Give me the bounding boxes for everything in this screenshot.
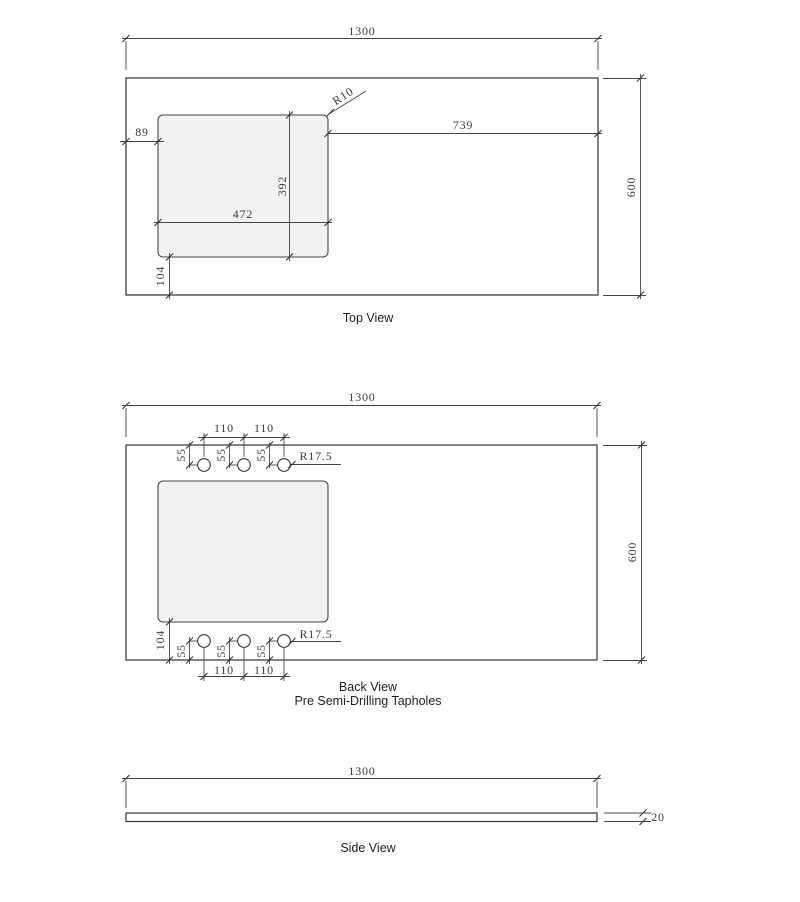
- top-cutout-width-dim: 472: [233, 208, 253, 220]
- top-cutout-offset-front-dim: 104: [154, 266, 166, 286]
- back-overall-width-dim: 1300: [348, 391, 375, 403]
- back-taphole-offset-top-2-dim: 55: [215, 448, 227, 462]
- back-taphole-offset-bottom-3-dim: 55: [255, 644, 267, 658]
- drawing-linework: [0, 0, 800, 902]
- taphole-top-left: [198, 459, 211, 472]
- back-taphole-spacing-top-2-dim: 110: [254, 422, 274, 434]
- taphole-top-middle: [238, 459, 251, 472]
- top-overall-width-dim: 1300: [348, 25, 375, 37]
- top-cutout-offset-left-dim: 89: [135, 126, 149, 138]
- taphole-bottom-middle: [238, 635, 251, 648]
- back-view-sink-cutout: [158, 481, 328, 622]
- top-overall-depth-dim: 600: [625, 177, 637, 197]
- back-view-subcaption: Pre Semi-Drilling Tapholes: [294, 694, 441, 708]
- back-taphole-radius-top-dim: R17.5: [299, 450, 332, 462]
- top-cutout-depth-dim: 392: [276, 176, 288, 196]
- back-taphole-radius-bottom-dim: R17.5: [299, 628, 332, 640]
- top-view: [120, 35, 646, 299]
- back-view: [122, 402, 647, 681]
- taphole-top-right: [278, 459, 291, 472]
- top-view-caption: Top View: [343, 311, 394, 325]
- top-cutout-offset-right-dim: 739: [453, 119, 473, 131]
- side-thickness-dim: 20: [651, 811, 665, 823]
- back-taphole-offset-top-1-dim: 55: [175, 448, 187, 462]
- side-overall-width-dim: 1300: [348, 765, 375, 777]
- back-taphole-offset-top-3-dim: 55: [255, 448, 267, 462]
- back-view-caption: Back View: [339, 680, 397, 694]
- back-taphole-offset-bottom-2-dim: 55: [215, 644, 227, 658]
- side-view-caption: Side View: [340, 841, 395, 855]
- side-view-benchtop-slab: [126, 813, 597, 822]
- back-taphole-spacing-bottom-2-dim: 110: [254, 664, 274, 676]
- back-taphole-spacing-bottom-1-dim: 110: [214, 664, 234, 676]
- technical-drawing-sheet: 1300 600 89 R10 739 392 472 104 Top View…: [0, 0, 800, 902]
- back-overall-depth-dim: 600: [626, 542, 638, 562]
- back-cutout-offset-front-dim: 104: [154, 630, 166, 650]
- side-view: [122, 775, 651, 825]
- back-taphole-offset-bottom-1-dim: 55: [175, 644, 187, 658]
- taphole-bottom-right: [278, 635, 291, 648]
- taphole-bottom-left: [198, 635, 211, 648]
- top-view-sink-cutout: [158, 115, 328, 257]
- back-taphole-spacing-top-1-dim: 110: [214, 422, 234, 434]
